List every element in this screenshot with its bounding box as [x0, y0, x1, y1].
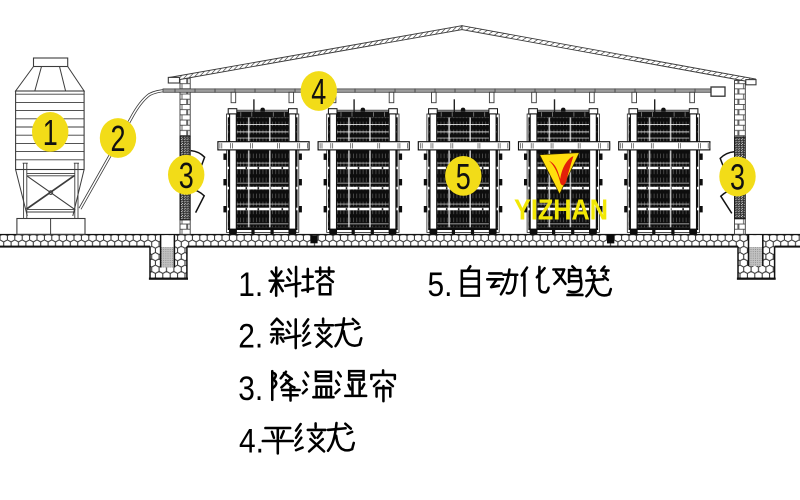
- svg-text:YIZHAN: YIZHAN: [514, 195, 608, 227]
- svg-text:3: 3: [179, 155, 194, 196]
- svg-text:1: 1: [43, 112, 58, 153]
- svg-text:4: 4: [311, 71, 326, 112]
- svg-text:2.: 2.: [238, 317, 263, 355]
- svg-text:2: 2: [110, 118, 125, 159]
- svg-text:1.: 1.: [238, 265, 263, 303]
- svg-text:5.: 5.: [428, 265, 453, 303]
- svg-text:3: 3: [730, 157, 745, 198]
- svg-text:3.: 3.: [238, 369, 263, 407]
- svg-text:4.: 4.: [239, 422, 264, 460]
- svg-text:5: 5: [456, 156, 471, 197]
